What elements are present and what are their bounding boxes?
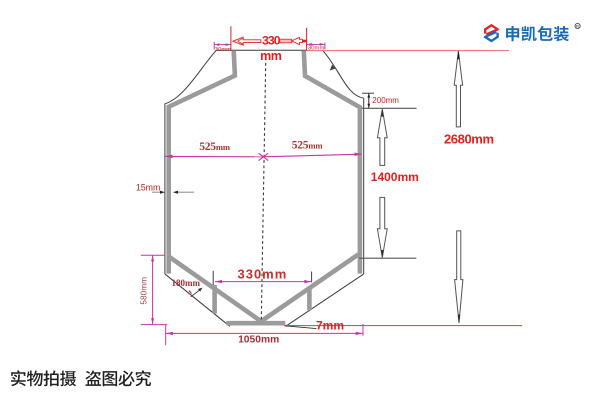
svg-text:580mm: 580mm <box>138 277 148 305</box>
svg-text:180mm: 180mm <box>172 278 201 288</box>
svg-text:1400mm: 1400mm <box>371 170 419 184</box>
svg-text:1050mm: 1050mm <box>238 335 279 346</box>
svg-text:525mm: 525mm <box>199 141 231 153</box>
svg-text:200mm: 200mm <box>372 96 399 105</box>
svg-text:30mm: 30mm <box>308 46 324 52</box>
svg-text:2680mm: 2680mm <box>444 132 494 147</box>
svg-text:525mm: 525mm <box>292 139 324 151</box>
svg-text:330: 330 <box>262 33 281 47</box>
svg-text:7mm: 7mm <box>316 318 344 332</box>
svg-text:mm: mm <box>260 49 282 63</box>
svg-text:15mm: 15mm <box>136 182 160 192</box>
svg-text:330mm: 330mm <box>237 267 287 282</box>
svg-text:30mm: 30mm <box>215 47 231 53</box>
